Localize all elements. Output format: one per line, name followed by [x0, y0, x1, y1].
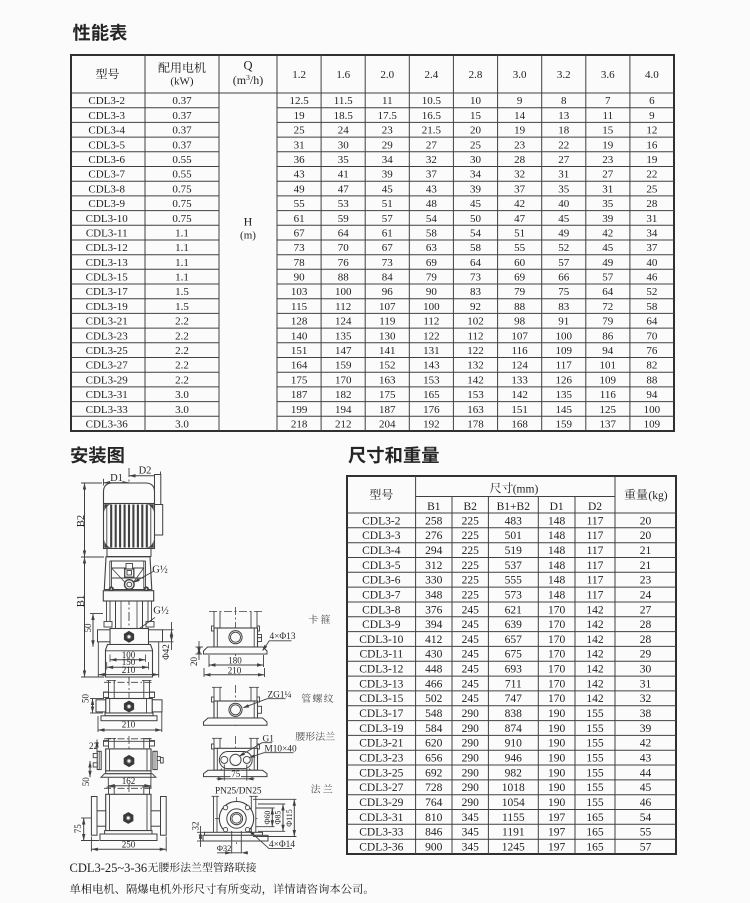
svg-text:83: 83	[470, 286, 482, 298]
svg-text:162: 162	[122, 776, 136, 786]
svg-text:225: 225	[462, 575, 480, 587]
svg-text:CDL3-7: CDL3-7	[362, 589, 401, 601]
svg-text:CDL3-19: CDL3-19	[359, 723, 403, 735]
svg-text:CDL3-11: CDL3-11	[86, 228, 128, 240]
svg-text:194: 194	[335, 404, 352, 416]
svg-text:51: 51	[382, 198, 393, 210]
svg-text:28: 28	[640, 619, 652, 631]
svg-text:D2: D2	[139, 465, 152, 476]
svg-text:75: 75	[231, 769, 241, 779]
svg-text:24: 24	[640, 589, 652, 601]
svg-text:245: 245	[462, 664, 480, 676]
svg-text:61: 61	[294, 213, 305, 225]
svg-text:55: 55	[640, 827, 652, 839]
svg-text:483: 483	[505, 515, 523, 527]
svg-text:190: 190	[548, 708, 566, 720]
svg-text:0.55: 0.55	[172, 154, 192, 166]
svg-text:79: 79	[426, 272, 438, 284]
svg-text:49: 49	[294, 183, 306, 195]
svg-text:CDL3-33: CDL3-33	[359, 827, 403, 839]
svg-text:40: 40	[646, 257, 658, 269]
svg-text:394: 394	[425, 619, 443, 631]
svg-text:50: 50	[83, 623, 93, 633]
svg-text:117: 117	[587, 575, 604, 587]
svg-text:502: 502	[425, 693, 443, 705]
svg-text:165: 165	[423, 389, 440, 401]
svg-text:22: 22	[558, 139, 569, 151]
svg-text:31: 31	[558, 169, 569, 181]
svg-text:G½: G½	[152, 565, 168, 576]
svg-text:29: 29	[640, 649, 652, 661]
svg-text:CDL3-6: CDL3-6	[88, 154, 125, 166]
svg-text:CDL3-15: CDL3-15	[359, 693, 403, 705]
svg-text:192: 192	[423, 419, 440, 431]
svg-text:Φ60: Φ60	[263, 811, 272, 825]
svg-text:145: 145	[555, 404, 572, 416]
svg-text:35: 35	[602, 198, 614, 210]
svg-text:CDL3-25: CDL3-25	[86, 345, 129, 357]
svg-text:148: 148	[548, 575, 566, 587]
svg-text:125: 125	[600, 404, 617, 416]
svg-text:D1: D1	[110, 473, 123, 484]
svg-text:20: 20	[640, 530, 652, 542]
svg-text:29: 29	[382, 139, 394, 151]
svg-text:31: 31	[640, 678, 652, 690]
svg-text:100: 100	[555, 330, 572, 342]
svg-text:124: 124	[335, 316, 352, 328]
svg-text:190: 190	[548, 797, 566, 809]
svg-text:16: 16	[646, 139, 658, 151]
svg-text:639: 639	[505, 619, 523, 631]
svg-text:155: 155	[586, 782, 604, 794]
svg-text:187: 187	[291, 389, 308, 401]
svg-text:3.6: 3.6	[601, 69, 615, 81]
svg-text:345: 345	[462, 842, 480, 854]
svg-text:B2: B2	[76, 515, 87, 527]
svg-text:910: 910	[505, 738, 523, 750]
svg-text:58: 58	[426, 228, 438, 240]
svg-text:170: 170	[548, 664, 566, 676]
svg-text:519: 519	[505, 545, 523, 557]
svg-text:245: 245	[462, 604, 480, 616]
svg-text:31: 31	[294, 139, 305, 151]
svg-text:218: 218	[291, 419, 308, 431]
svg-text:1018: 1018	[502, 782, 525, 794]
svg-text:42: 42	[640, 738, 652, 750]
svg-text:88: 88	[338, 272, 350, 284]
svg-text:PN25/DN25: PN25/DN25	[215, 787, 262, 797]
svg-text:39: 39	[382, 169, 394, 181]
svg-text:CDL3-12: CDL3-12	[86, 242, 128, 254]
svg-text:711: 711	[505, 678, 522, 690]
svg-text:153: 153	[467, 389, 484, 401]
svg-text:42: 42	[602, 228, 613, 240]
svg-text:412: 412	[425, 634, 443, 646]
svg-text:25: 25	[294, 125, 306, 137]
svg-text:76: 76	[646, 345, 658, 357]
svg-text:28: 28	[514, 154, 526, 166]
svg-text:3.0: 3.0	[175, 404, 189, 416]
svg-text:245: 245	[462, 678, 480, 690]
svg-text:764: 764	[425, 797, 443, 809]
svg-text:245: 245	[462, 649, 480, 661]
svg-text:170: 170	[335, 374, 352, 386]
svg-text:100: 100	[423, 301, 440, 313]
svg-text:170: 170	[548, 619, 566, 631]
svg-text:348: 348	[425, 589, 443, 601]
svg-text:18: 18	[558, 125, 570, 137]
svg-text:656: 656	[425, 753, 443, 765]
svg-text:45: 45	[602, 242, 614, 254]
svg-text:CDL3-12: CDL3-12	[359, 664, 403, 676]
svg-text:122: 122	[467, 345, 484, 357]
svg-text:23: 23	[514, 139, 526, 151]
svg-text:204: 204	[379, 419, 396, 431]
svg-text:50: 50	[81, 777, 91, 787]
svg-text:466: 466	[425, 678, 443, 690]
svg-text:122: 122	[423, 330, 440, 342]
svg-text:0.75: 0.75	[172, 213, 192, 225]
svg-text:53: 53	[338, 198, 350, 210]
svg-text:CDL3-3: CDL3-3	[362, 530, 401, 542]
svg-text:15: 15	[602, 125, 614, 137]
svg-text:100: 100	[644, 404, 661, 416]
svg-text:31: 31	[602, 183, 613, 195]
svg-text:91: 91	[558, 316, 569, 328]
svg-text:66: 66	[558, 272, 570, 284]
svg-text:(m): (m)	[240, 230, 256, 242]
svg-text:CDL3-27: CDL3-27	[359, 782, 403, 794]
svg-text:165: 165	[586, 842, 604, 854]
svg-text:621: 621	[505, 604, 523, 616]
svg-text:448: 448	[425, 664, 443, 676]
svg-text:501: 501	[505, 530, 523, 542]
svg-text:69: 69	[426, 257, 438, 269]
svg-text:46: 46	[640, 797, 652, 809]
svg-text:Q: Q	[243, 59, 252, 73]
svg-text:54: 54	[426, 213, 438, 225]
svg-text:30: 30	[338, 139, 350, 151]
svg-text:48: 48	[426, 198, 438, 210]
svg-text:CDL3-33: CDL3-33	[86, 404, 129, 416]
svg-text:620: 620	[425, 738, 443, 750]
svg-text:12: 12	[646, 125, 657, 137]
svg-text:3.0: 3.0	[175, 419, 189, 431]
svg-text:210: 210	[122, 665, 136, 675]
svg-text:54: 54	[640, 812, 652, 824]
svg-text:210: 210	[122, 720, 136, 730]
svg-text:16.5: 16.5	[422, 110, 442, 122]
svg-text:116: 116	[512, 345, 529, 357]
svg-text:79: 79	[514, 286, 526, 298]
svg-text:107: 107	[511, 330, 528, 342]
svg-text:747: 747	[505, 693, 523, 705]
svg-text:76: 76	[338, 257, 350, 269]
svg-text:2.2: 2.2	[175, 360, 189, 372]
svg-text:0.55: 0.55	[172, 169, 192, 181]
svg-text:728: 728	[425, 782, 443, 794]
svg-text:Φ42: Φ42	[161, 644, 171, 660]
svg-text:23: 23	[640, 575, 652, 587]
svg-text:CDL3-8: CDL3-8	[88, 183, 125, 195]
svg-text:190: 190	[548, 738, 566, 750]
svg-text:CDL3-17: CDL3-17	[86, 286, 129, 298]
svg-text:CDL3-29: CDL3-29	[86, 374, 129, 386]
svg-text:57: 57	[602, 272, 614, 284]
svg-text:98: 98	[514, 316, 526, 328]
svg-text:G½: G½	[153, 606, 169, 617]
svg-text:163: 163	[379, 374, 396, 386]
svg-text:187: 187	[379, 404, 396, 416]
svg-text:86: 86	[602, 330, 614, 342]
svg-text:810: 810	[425, 812, 443, 824]
svg-text:18.5: 18.5	[334, 110, 354, 122]
svg-text:159: 159	[555, 419, 572, 431]
svg-text:0.75: 0.75	[172, 183, 192, 195]
svg-text:57: 57	[382, 213, 394, 225]
svg-text:25: 25	[470, 139, 482, 151]
svg-text:B1+B2: B1+B2	[497, 501, 531, 513]
svg-text:9: 9	[649, 110, 655, 122]
svg-text:88: 88	[514, 301, 526, 313]
svg-text:112: 112	[335, 301, 351, 313]
svg-text:155: 155	[586, 738, 604, 750]
svg-text:117: 117	[587, 530, 604, 542]
svg-text:52: 52	[558, 242, 569, 254]
svg-text:176: 176	[423, 404, 440, 416]
svg-text:13: 13	[558, 110, 570, 122]
svg-text:50: 50	[470, 213, 482, 225]
svg-text:27: 27	[602, 169, 614, 181]
svg-text:45: 45	[640, 782, 652, 794]
svg-text:1.2: 1.2	[292, 69, 306, 81]
svg-text:168: 168	[511, 419, 528, 431]
svg-text:0.75: 0.75	[172, 198, 192, 210]
svg-text:10: 10	[470, 95, 482, 107]
svg-text:12.5: 12.5	[289, 95, 309, 107]
svg-text:258: 258	[425, 515, 443, 527]
svg-text:210: 210	[228, 665, 242, 675]
svg-text:0.37: 0.37	[172, 125, 192, 137]
svg-text:63: 63	[426, 242, 438, 254]
svg-text:290: 290	[462, 708, 480, 720]
svg-text:675: 675	[505, 649, 523, 661]
svg-text:131: 131	[423, 345, 440, 357]
svg-text:23: 23	[602, 154, 614, 166]
svg-text:39: 39	[640, 723, 652, 735]
svg-text:3.0: 3.0	[513, 69, 527, 81]
svg-text:CDL3-3: CDL3-3	[88, 110, 125, 122]
svg-text:79: 79	[602, 316, 614, 328]
svg-text:3.2: 3.2	[557, 69, 571, 81]
svg-text:2.2: 2.2	[175, 345, 189, 357]
svg-text:55: 55	[514, 242, 526, 254]
svg-text:170: 170	[548, 693, 566, 705]
svg-text:43: 43	[294, 169, 306, 181]
svg-text:D2: D2	[588, 501, 602, 513]
svg-text:H: H	[244, 215, 253, 229]
svg-text:45: 45	[470, 198, 482, 210]
svg-text:838: 838	[505, 708, 523, 720]
svg-text:64: 64	[470, 257, 482, 269]
svg-text:151: 151	[511, 404, 528, 416]
svg-text:130: 130	[379, 330, 396, 342]
svg-text:109: 109	[644, 419, 661, 431]
svg-text:19: 19	[602, 139, 614, 151]
svg-text:58: 58	[470, 242, 482, 254]
svg-text:1.1: 1.1	[175, 242, 189, 254]
svg-text:CDL3-25: CDL3-25	[359, 767, 403, 779]
svg-text:17.5: 17.5	[378, 110, 398, 122]
svg-text:82: 82	[646, 360, 657, 372]
svg-text:31: 31	[646, 213, 657, 225]
svg-text:119: 119	[379, 316, 396, 328]
svg-text:178: 178	[467, 419, 484, 431]
svg-text:3.0: 3.0	[175, 389, 189, 401]
svg-text:64: 64	[646, 316, 658, 328]
svg-text:107: 107	[379, 301, 396, 313]
svg-text:38: 38	[640, 708, 652, 720]
svg-text:D1: D1	[550, 501, 564, 513]
svg-text:155: 155	[586, 767, 604, 779]
svg-text:190: 190	[548, 753, 566, 765]
svg-text:CDL3-25~3-36: CDL3-25~3-36	[70, 861, 148, 875]
svg-text:225: 225	[462, 545, 480, 557]
svg-text:190: 190	[548, 767, 566, 779]
svg-text:CDL3-10: CDL3-10	[359, 634, 403, 646]
svg-text:140: 140	[291, 330, 308, 342]
svg-text:2.4: 2.4	[425, 69, 439, 81]
svg-text:23: 23	[382, 125, 394, 137]
svg-text:CDL3-23: CDL3-23	[359, 753, 403, 765]
svg-text:CDL3-21: CDL3-21	[86, 316, 128, 328]
svg-text:CDL3-2: CDL3-2	[88, 95, 125, 107]
svg-text:900: 900	[425, 842, 443, 854]
svg-text:142: 142	[586, 634, 604, 646]
svg-text:2.0: 2.0	[380, 69, 394, 81]
svg-text:142: 142	[586, 649, 604, 661]
svg-text:102: 102	[467, 316, 484, 328]
svg-text:312: 312	[425, 560, 443, 572]
svg-text:CDL3-4: CDL3-4	[88, 125, 125, 137]
svg-text:148: 148	[548, 545, 566, 557]
svg-text:90: 90	[294, 272, 306, 284]
svg-text:40: 40	[558, 198, 570, 210]
svg-text:42: 42	[514, 198, 525, 210]
svg-text:94: 94	[646, 389, 658, 401]
svg-text:250: 250	[122, 839, 136, 849]
svg-text:CDL3-5: CDL3-5	[362, 560, 401, 572]
svg-text:CDL3-19: CDL3-19	[86, 301, 129, 313]
svg-text:21: 21	[640, 545, 652, 557]
svg-text:148: 148	[548, 560, 566, 572]
svg-text:982: 982	[505, 767, 523, 779]
svg-text:128: 128	[291, 316, 308, 328]
svg-text:180: 180	[228, 656, 242, 666]
svg-text:CDL3-13: CDL3-13	[86, 257, 129, 269]
svg-text:11.5: 11.5	[334, 95, 353, 107]
svg-text:45: 45	[382, 183, 394, 195]
svg-text:64: 64	[338, 228, 350, 240]
svg-text:B1: B1	[76, 595, 87, 607]
svg-text:142: 142	[586, 678, 604, 690]
svg-text:430: 430	[425, 649, 443, 661]
svg-text:CDL3-13: CDL3-13	[359, 678, 403, 690]
svg-text:8: 8	[561, 95, 567, 107]
svg-text:155: 155	[586, 723, 604, 735]
svg-text:117: 117	[587, 560, 604, 572]
svg-text:132: 132	[467, 360, 484, 372]
svg-text:22: 22	[646, 169, 657, 181]
svg-text:CDL3-4: CDL3-4	[362, 545, 401, 557]
svg-text:0.37: 0.37	[172, 139, 192, 151]
svg-text:(kg): (kg)	[648, 490, 667, 502]
svg-text:109: 109	[555, 345, 572, 357]
svg-text:59: 59	[338, 213, 350, 225]
svg-text:49: 49	[558, 228, 570, 240]
svg-text:CDL3-9: CDL3-9	[88, 198, 125, 210]
svg-text:116: 116	[600, 389, 617, 401]
svg-text:345: 345	[462, 827, 480, 839]
svg-text:94: 94	[602, 345, 614, 357]
svg-text:73: 73	[294, 242, 306, 254]
svg-text:CDL3-21: CDL3-21	[359, 738, 403, 750]
svg-text:846: 846	[425, 827, 443, 839]
svg-text:B1: B1	[427, 501, 441, 513]
svg-text:133: 133	[511, 374, 528, 386]
svg-text:39: 39	[470, 183, 482, 195]
svg-text:CDL3-31: CDL3-31	[86, 389, 128, 401]
svg-text:117: 117	[556, 360, 573, 372]
svg-text:CDL3-5: CDL3-5	[88, 139, 125, 151]
svg-text:165: 165	[586, 827, 604, 839]
svg-text:69: 69	[514, 272, 526, 284]
svg-text:137: 137	[600, 419, 617, 431]
svg-text:142: 142	[586, 604, 604, 616]
svg-text:245: 245	[462, 693, 480, 705]
svg-text:290: 290	[462, 797, 480, 809]
svg-text:30: 30	[470, 154, 482, 166]
svg-text:37: 37	[426, 169, 438, 181]
svg-text:70: 70	[338, 242, 350, 254]
svg-text:90: 90	[426, 286, 438, 298]
svg-text:2.2: 2.2	[175, 316, 189, 328]
svg-text:55: 55	[294, 198, 306, 210]
svg-text:141: 141	[379, 345, 396, 357]
svg-text:290: 290	[462, 753, 480, 765]
svg-text:197: 197	[548, 842, 566, 854]
svg-text:199: 199	[291, 404, 308, 416]
svg-text:73: 73	[382, 257, 394, 269]
svg-text:67: 67	[294, 228, 306, 240]
svg-text:165: 165	[586, 812, 604, 824]
svg-text:CDL3-27: CDL3-27	[86, 360, 129, 372]
svg-text:CDL3-10: CDL3-10	[86, 213, 129, 225]
svg-text:135: 135	[335, 330, 352, 342]
svg-text:CDL3-8: CDL3-8	[362, 604, 401, 616]
svg-text:276: 276	[425, 530, 443, 542]
svg-text:153: 153	[423, 374, 440, 386]
svg-text:657: 657	[505, 634, 523, 646]
svg-text:148: 148	[548, 515, 566, 527]
svg-text:47: 47	[338, 183, 350, 195]
svg-text:7: 7	[605, 95, 611, 107]
svg-text:1.1: 1.1	[175, 272, 189, 284]
svg-text:2.8: 2.8	[469, 69, 483, 81]
svg-text:21.5: 21.5	[422, 125, 442, 137]
svg-text:35: 35	[338, 154, 350, 166]
svg-text:225: 225	[462, 589, 480, 601]
